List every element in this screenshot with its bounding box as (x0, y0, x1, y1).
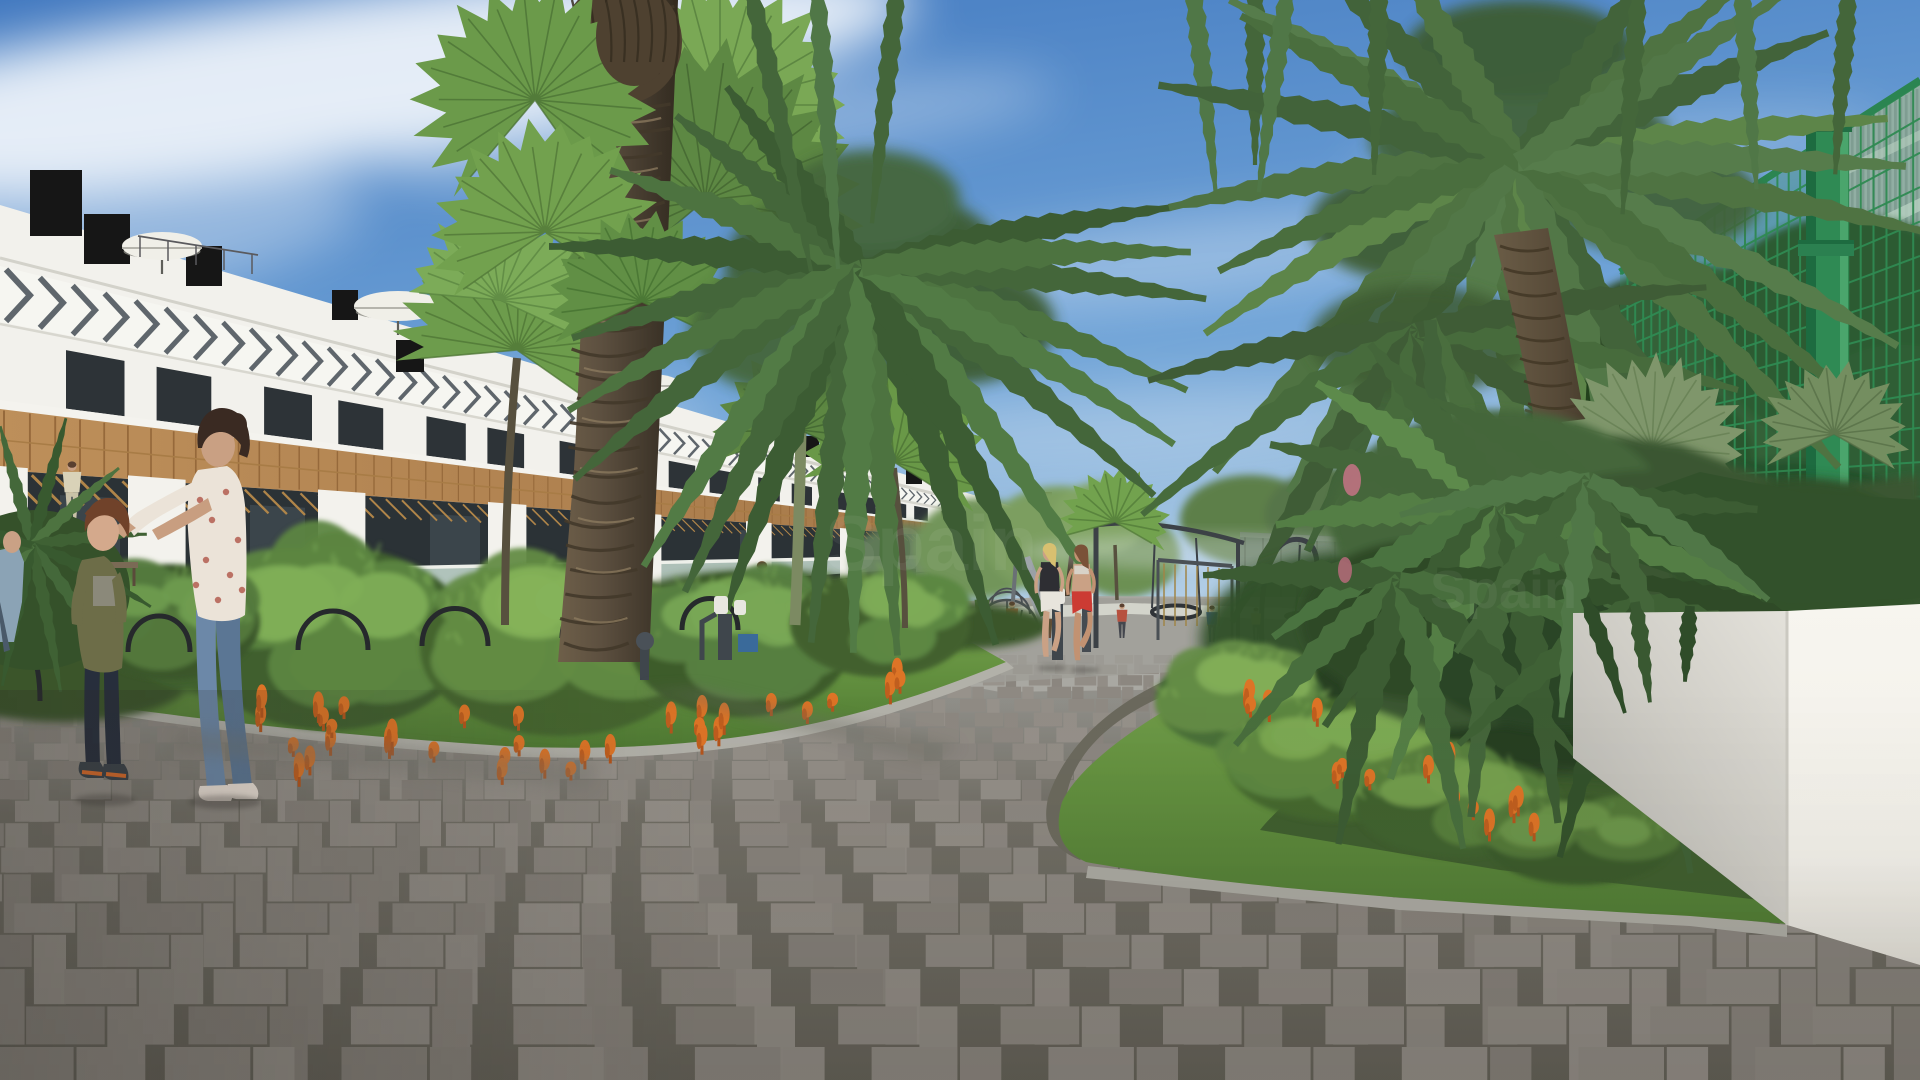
svg-text:Spain: Spain (825, 499, 1037, 587)
svg-text:Spain: Spain (1430, 560, 1577, 620)
